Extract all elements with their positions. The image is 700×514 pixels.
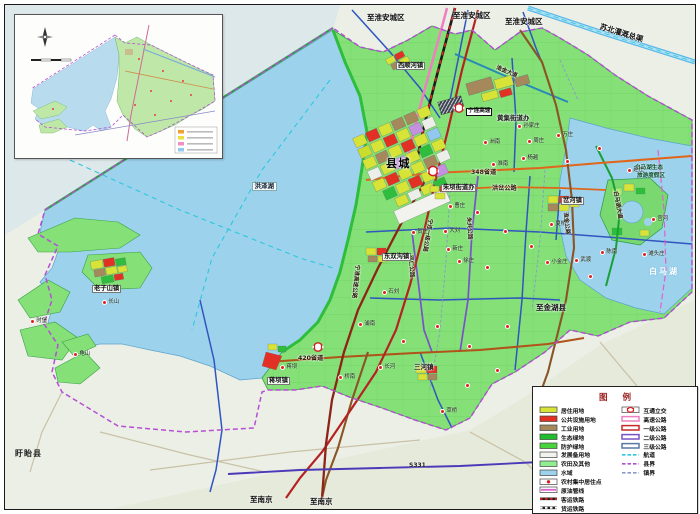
map-label: 洪泽湖 bbox=[252, 182, 277, 191]
village-dot-icon bbox=[491, 162, 496, 167]
legend-item-label: 货运铁路 bbox=[561, 504, 584, 513]
village-point: 新庄 bbox=[446, 247, 463, 254]
legend-item-label: 原油管线 bbox=[561, 486, 584, 495]
legend-left-column: 居住用地公共设施用地工业用地生态绿地防护绿地发展备用地农田及其他水域农村集中居住… bbox=[539, 406, 621, 513]
village-dot-icon bbox=[565, 159, 570, 164]
village-dot bbox=[505, 324, 511, 331]
legend-swatch-fill bbox=[539, 406, 558, 414]
legend-right-column: 互通立交高速公路一级公路二级公路三级公路航道县界镇界 bbox=[621, 406, 694, 513]
village-dot-icon bbox=[642, 252, 647, 257]
scale-bar bbox=[31, 59, 71, 61]
village-dot-icon bbox=[382, 290, 387, 295]
village-dot-icon bbox=[280, 365, 285, 370]
legend-swatch-fill bbox=[539, 415, 558, 423]
village-dot-icon bbox=[465, 383, 470, 388]
legend-title: 图 例 bbox=[539, 391, 697, 403]
legend-swatch-dline bbox=[621, 433, 640, 441]
map-label: S331 bbox=[409, 463, 426, 469]
village-dot-icon bbox=[102, 300, 107, 305]
map-label: 三河镇 bbox=[414, 364, 434, 371]
legend-item: 货运铁路 bbox=[539, 504, 621, 513]
village-point: 赵庄 bbox=[627, 168, 644, 175]
village-point: 万庄 bbox=[556, 133, 573, 140]
village-point: 洲南 bbox=[483, 140, 500, 147]
map-label: 洪岔公路 bbox=[492, 186, 517, 192]
legend-swatch-dline bbox=[621, 415, 640, 423]
legend-item: 水域 bbox=[539, 468, 621, 477]
map-label: 朱共公路 bbox=[464, 217, 471, 240]
legend-item: 一级公路 bbox=[621, 424, 694, 433]
legend-swatch-fill bbox=[539, 442, 558, 450]
village-dot-icon bbox=[600, 250, 605, 255]
legend-item-label: 农田及其他 bbox=[561, 459, 590, 468]
village-dot-icon bbox=[475, 210, 480, 215]
village-point: 时堡 bbox=[30, 319, 47, 326]
legend-item: 县界 bbox=[621, 459, 694, 468]
map-label: 至金湖县 bbox=[536, 304, 566, 312]
legend-item-label: 镇界 bbox=[643, 468, 655, 477]
village-dot-icon bbox=[529, 244, 534, 249]
village-point: 周庄 bbox=[527, 139, 544, 146]
village-point: 徐庄 bbox=[457, 259, 474, 266]
village-point: 大刘 bbox=[443, 229, 460, 236]
village-dot bbox=[503, 229, 509, 236]
village-dot-icon bbox=[435, 324, 440, 329]
map-label: 至淮安城区 bbox=[367, 14, 405, 22]
map-page: 至淮安城区至淮安城区至淮安城区苏北灌溉总渠西顺河镇淮金大道宁连高速黄集街道办县城… bbox=[0, 0, 700, 514]
map-label: 旅游度假区 bbox=[637, 174, 665, 180]
map-frame: 至淮安城区至淮安城区至淮安城区苏北灌溉总渠西顺河镇淮金大道宁连高速黄集街道办县城… bbox=[4, 4, 696, 510]
village-dot bbox=[495, 368, 501, 375]
village-dot-icon bbox=[446, 247, 451, 252]
map-label: 老子山镇 bbox=[92, 285, 121, 293]
legend-swatch-fill bbox=[539, 424, 558, 432]
legend-swatch-dline bbox=[621, 424, 640, 432]
legend-item-label: 一级公路 bbox=[643, 424, 666, 433]
village-dot bbox=[597, 146, 603, 153]
legend-item: 发展备用地 bbox=[539, 450, 621, 459]
legend-item-label: 防护绿地 bbox=[561, 442, 584, 451]
village-point: 草桥 bbox=[440, 409, 457, 416]
village-dot-icon bbox=[549, 222, 554, 227]
village-point: 陈南 bbox=[600, 250, 617, 257]
legend-swatch-pipeline bbox=[539, 486, 558, 494]
village-dot-icon bbox=[73, 352, 78, 357]
legend-swatch-dline bbox=[621, 442, 640, 450]
map-label: 盱眙县 bbox=[15, 450, 42, 458]
village-point: 曹庄 bbox=[448, 204, 465, 211]
village-dot-icon bbox=[545, 260, 550, 265]
legend-item-label: 生态绿地 bbox=[561, 433, 584, 442]
village-dot-icon bbox=[651, 217, 656, 222]
village-point: 长山 bbox=[102, 300, 119, 307]
map-label: 黄集街道办 bbox=[497, 115, 530, 122]
legend-item-label: 工业用地 bbox=[561, 424, 584, 433]
legend-item-label: 农村集中居住点 bbox=[561, 477, 602, 486]
legend-item-label: 居住用地 bbox=[561, 406, 584, 415]
legend-item-label: 公共设施用地 bbox=[561, 415, 596, 424]
legend-item-label: 水域 bbox=[561, 468, 573, 477]
legend-swatch-inter bbox=[621, 406, 640, 414]
village-dot-icon bbox=[503, 229, 508, 234]
village-point: 宫河 bbox=[651, 217, 668, 224]
village-dot-icon bbox=[378, 365, 383, 370]
village-dot-icon bbox=[467, 344, 472, 349]
village-dot bbox=[588, 274, 594, 281]
map-label: 至淮安城区 bbox=[505, 18, 543, 26]
map-label: 至南京 bbox=[250, 496, 273, 504]
legend-item: 客运铁路 bbox=[539, 495, 621, 504]
village-point: 贺庄 bbox=[411, 230, 428, 237]
inset-mini-legend bbox=[175, 127, 217, 153]
village-dot bbox=[435, 324, 441, 331]
village-point: 小金庄 bbox=[545, 260, 568, 267]
village-dot-icon bbox=[505, 324, 510, 329]
village-dot-icon bbox=[401, 339, 406, 344]
village-dot bbox=[485, 265, 491, 272]
legend-item-label: 发展备用地 bbox=[561, 450, 590, 459]
legend-swatch-railp bbox=[539, 495, 558, 503]
village-dot-icon bbox=[411, 230, 416, 235]
village-point: 淮南 bbox=[491, 162, 508, 169]
village-dot-icon bbox=[443, 229, 448, 234]
village-point: 夏桥 bbox=[549, 222, 566, 229]
village-dot-icon bbox=[485, 265, 490, 270]
legend-item: 农村集中居住点 bbox=[539, 477, 621, 486]
legend-item: 生态绿地 bbox=[539, 433, 621, 442]
legend-swatch-dash bbox=[621, 460, 640, 468]
map-label: 420省道 bbox=[298, 356, 323, 362]
legend-item: 互通立交 bbox=[621, 406, 694, 415]
legend-swatch-dash bbox=[621, 469, 640, 477]
legend-swatch-fill bbox=[539, 469, 558, 477]
village-dot bbox=[467, 344, 473, 351]
legend-item-label: 二级公路 bbox=[643, 433, 666, 442]
legend-item: 原油管线 bbox=[539, 486, 621, 495]
legend-item-label: 三级公路 bbox=[643, 442, 666, 451]
legend-item: 二级公路 bbox=[621, 433, 694, 442]
map-label: 宁连高速 bbox=[466, 108, 492, 116]
village-dot-icon bbox=[457, 259, 462, 264]
village-point: 蒋坝 bbox=[280, 365, 297, 372]
village-point: 杨越 bbox=[521, 156, 538, 163]
village-dot-icon bbox=[517, 124, 522, 129]
village-dot bbox=[565, 159, 571, 166]
map-label: 东双沟镇 bbox=[382, 253, 411, 261]
legend-item: 工业用地 bbox=[539, 424, 621, 433]
legend-panel: 图 例 居住用地公共设施用地工业用地生态绿地防护绿地发展备用地农田及其他水域农村… bbox=[532, 386, 698, 514]
village-point: 武渡 bbox=[574, 258, 591, 265]
village-dot-icon bbox=[556, 133, 561, 138]
village-dot-icon bbox=[483, 140, 488, 145]
village-dot-icon bbox=[627, 168, 632, 173]
village-dot-icon bbox=[574, 258, 579, 263]
village-point: 石刘 bbox=[382, 290, 399, 297]
map-label: 348省道 bbox=[471, 170, 496, 176]
legend-swatch-fill bbox=[539, 451, 558, 459]
village-dot-icon bbox=[495, 368, 500, 373]
village-dot-icon bbox=[588, 274, 593, 279]
village-point: 龟山 bbox=[73, 352, 90, 359]
legend-item: 公共设施用地 bbox=[539, 415, 621, 424]
village-point: 滩头庄 bbox=[642, 252, 665, 259]
legend-item-label: 高速公路 bbox=[643, 415, 666, 424]
village-point: 孙家庄 bbox=[517, 124, 540, 131]
village-dot-icon bbox=[440, 409, 445, 414]
village-dot-icon bbox=[521, 156, 526, 161]
legend-item-label: 航道 bbox=[643, 450, 655, 459]
village-dot-icon bbox=[358, 322, 363, 327]
map-label: 西顺河镇 bbox=[396, 62, 425, 70]
legend-item: 农田及其他 bbox=[539, 459, 621, 468]
map-label: 白马湖 bbox=[649, 268, 679, 276]
legend-swatch-fill bbox=[539, 433, 558, 441]
village-dot bbox=[465, 383, 471, 390]
legend-item-label: 互通立交 bbox=[643, 406, 666, 415]
legend-item: 镇界 bbox=[621, 468, 694, 477]
legend-item: 高速公路 bbox=[621, 415, 694, 424]
legend-item: 防护绿地 bbox=[539, 442, 621, 451]
village-dot bbox=[475, 210, 481, 217]
map-label: 至淮安城区 bbox=[453, 12, 491, 20]
map-label: 岔河镇 bbox=[561, 197, 584, 205]
legend-swatch-fill bbox=[539, 460, 558, 468]
legend-item: 三级公路 bbox=[621, 442, 694, 451]
legend-swatch-village bbox=[539, 478, 558, 486]
village-dot bbox=[401, 339, 407, 346]
village-dot bbox=[529, 244, 535, 251]
village-dot-icon bbox=[448, 204, 453, 209]
village-point: 浦南 bbox=[358, 322, 375, 329]
map-label: 至南京 bbox=[310, 498, 333, 506]
legend-item: 居住用地 bbox=[539, 406, 621, 415]
village-dot-icon bbox=[527, 139, 532, 144]
map-label: 朱坝街道办 bbox=[441, 184, 476, 192]
legend-item-label: 县界 bbox=[643, 459, 655, 468]
village-dot-icon bbox=[338, 375, 343, 380]
inset-map-canvas bbox=[15, 15, 220, 156]
legend-item-label: 客运铁路 bbox=[561, 495, 584, 504]
village-dot-icon bbox=[597, 146, 602, 151]
legend-swatch-railf bbox=[539, 504, 558, 512]
map-label: 县城 bbox=[386, 158, 411, 169]
map-label: 蒋坝镇 bbox=[267, 377, 290, 385]
village-point: 长河 bbox=[378, 365, 395, 372]
village-point: 桥南 bbox=[338, 375, 355, 382]
legend-item: 航道 bbox=[621, 450, 694, 459]
inset-overview-map bbox=[14, 14, 223, 159]
village-dot-icon bbox=[30, 319, 35, 324]
legend-swatch-dash bbox=[621, 451, 640, 459]
